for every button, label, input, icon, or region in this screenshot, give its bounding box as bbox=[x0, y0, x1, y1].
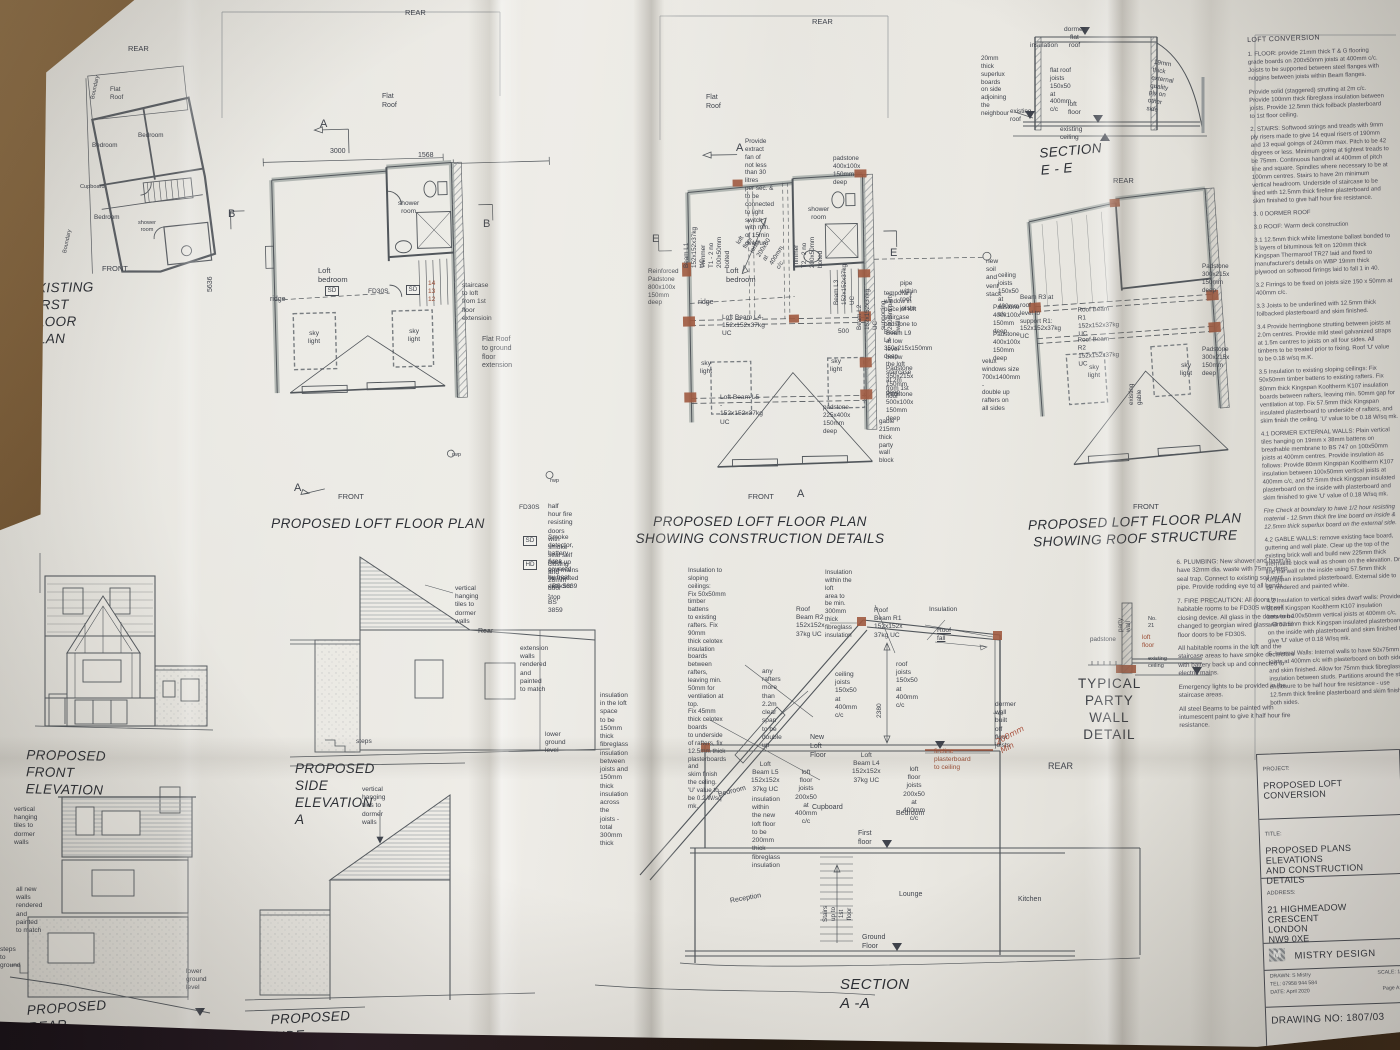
loft-rear-label: REAR bbox=[405, 8, 426, 17]
insulation-label: Insulation bbox=[929, 606, 957, 614]
note-item: 3.0 ROOF: Warm deck construction bbox=[1254, 219, 1392, 232]
skylight-label: sky light bbox=[700, 360, 712, 376]
insulation-new-floor-note: insulation within the new loft floor to … bbox=[752, 796, 780, 870]
neighbour-label: No. 21 bbox=[1148, 616, 1157, 630]
scale: SCALE: 1: bbox=[1377, 969, 1400, 976]
title-block-meta-row: DRAWN: S Mistry TEL: 07958 944 584 DATE:… bbox=[1265, 966, 1400, 1008]
page: Page A1 bbox=[1383, 985, 1400, 992]
project-name: PROPOSED LOFT CONVERSION bbox=[1263, 776, 1396, 801]
section-ee-title: SECTION E - E bbox=[1039, 140, 1105, 179]
title-block: PROJECT: PROPOSED LOFT CONVERSION TITLE:… bbox=[1256, 749, 1400, 1048]
staircase-note: staircase to loft from 1st floor extensi… bbox=[462, 282, 492, 323]
existing-roof-label: existing roof bbox=[1010, 108, 1031, 124]
tiles-note: vertical hanging tiles to dormer walls bbox=[362, 786, 385, 827]
superlux-boards-note: 20mm thick superlux boards on side adjoi… bbox=[981, 55, 1009, 118]
mistry-logo-icon: M bbox=[1269, 948, 1285, 962]
skylight-label: sky light bbox=[308, 330, 320, 346]
ridge-label: ridge bbox=[270, 296, 286, 305]
note-item: 1. FLOOR: provide 21mm thick T & G floor… bbox=[1248, 47, 1387, 84]
construction-flat-roof-label: Flat Roof bbox=[706, 94, 721, 112]
insulation-loft-note: Insulation within the loft area to be mi… bbox=[825, 569, 852, 640]
section-marker-b: B bbox=[483, 218, 490, 232]
fd30s-door-label: FD30S bbox=[368, 288, 389, 296]
section-ee-drawing bbox=[985, 15, 1235, 165]
shower-room-label: shower room bbox=[138, 220, 156, 234]
ceiling-joists-note: ceiling joists 150x50 at 400mm c/c bbox=[835, 671, 857, 720]
loft-flat-roof-label: Flat Roof bbox=[382, 93, 397, 111]
roof-front-label: FRONT bbox=[1133, 502, 1159, 511]
title-block-address-row: ADDRESS: 21 HIGHMEADOW CRESCENT LONDON N… bbox=[1261, 874, 1400, 944]
bedroom-label: Bedroom bbox=[92, 142, 118, 150]
bedroom-label: Bedroom bbox=[896, 810, 924, 819]
construction-plan-title: PROPOSED LOFT FLOOR PLAN SHOWING CONSTRU… bbox=[580, 514, 940, 548]
plumbing-note: 6. PLUMBING: New shower and basin to hav… bbox=[1176, 557, 1295, 593]
photo-of-architectural-drawing: REAR Flat Roof Boundary Boundary Bedroom… bbox=[0, 0, 1400, 1050]
note-item: 3. 0 DORMER ROOF bbox=[1253, 206, 1391, 219]
fire-note: 7. FIRE PRECAUTION: All doors to habitab… bbox=[1177, 596, 1296, 640]
loft-front-label: FRONT bbox=[338, 492, 364, 501]
insulation-sloping-note: Insulation to sloping ceilings: Fix 50x5… bbox=[688, 567, 726, 811]
note-item-fire-check: Fire Check at boundary to have 1/2 hour … bbox=[1263, 503, 1400, 532]
fire-note: Emergency lights to be provided in the s… bbox=[1179, 682, 1297, 701]
gable-party-wall-note: gable 215mm thick party wall block bbox=[879, 418, 900, 465]
first-floor-label: First floor bbox=[858, 830, 872, 848]
drawing-number: DRAWING NO: 1807/03 bbox=[1271, 1012, 1384, 1027]
title-block-project-row: PROJECT: PROPOSED LOFT CONVERSION bbox=[1257, 750, 1400, 820]
reinforced-padstone-note: Reinforced Padstone 800x100x 150mm deep bbox=[648, 268, 678, 307]
dimension-500: 500 bbox=[838, 328, 849, 336]
padstone-225-note: padstone 225x400x 150mm deep bbox=[823, 404, 850, 435]
insulation-loft-space-note: insulation in the loft space to be 150mm… bbox=[600, 692, 628, 848]
existing-front-label: FRONT bbox=[102, 264, 128, 273]
section-aa-title: SECTION A -A bbox=[840, 976, 909, 1014]
note-item: 2. STAIRS: Softwood strings and treads w… bbox=[1250, 121, 1391, 206]
address-label: ADDRESS: bbox=[1267, 890, 1296, 897]
beam-l5-label: Loft Beam L5 - 152x152x37kg UC bbox=[720, 394, 763, 427]
skylight-label: sky light bbox=[1180, 362, 1192, 378]
fireline-plasterboard-note: fireline plasterboard to ceiling bbox=[934, 748, 971, 773]
stair-riser-numbers: 14 13 12 bbox=[428, 280, 435, 305]
front-elevation-drawing bbox=[15, 548, 225, 763]
loft-plan-title: PROPOSED LOFT FLOOR PLAN bbox=[253, 516, 503, 533]
roof-joists-note: roof joists 150x50 at 400mm c/c bbox=[896, 661, 918, 710]
lower-ground-note: lower ground level bbox=[186, 968, 207, 993]
floor-joists-note: loft floor joists 200x50 at 400mm c/c bbox=[795, 769, 817, 827]
section-marker-a: A bbox=[320, 118, 327, 132]
title-block-number-row: DRAWING NO: 1807/03 bbox=[1266, 1003, 1400, 1032]
beam-l3-label: Beam L3 152x152x37kg UC bbox=[833, 264, 857, 305]
skylight-label: sky light bbox=[1088, 364, 1100, 380]
note-item: 3.4 Provide herringbone strutting betwee… bbox=[1257, 319, 1396, 364]
ridge-label: ridge bbox=[698, 299, 714, 308]
beam-l4-label: Loft Beam L4- 152x152x37kg UC bbox=[722, 314, 765, 339]
loft-beam-l5-label: Loft Beam L5 152x152x 37kg UC bbox=[751, 761, 780, 794]
roof-beam-r1-label: Roof Beam R1 152x152x37kg UC bbox=[1077, 305, 1119, 338]
project-label: PROJECT: bbox=[1262, 766, 1289, 773]
roof-rear-label: REAR bbox=[1113, 176, 1134, 185]
lounge-label: Lounge bbox=[899, 891, 922, 900]
beam-r3-note: Beam R3 at roof level to support R1: 152… bbox=[1020, 294, 1061, 341]
trimmer-t1-label: Trimmer T1 - 2 no 200x50mm bolted bbox=[700, 237, 731, 268]
stairs-label: Stairs up to 1st floor bbox=[822, 906, 853, 922]
section-marker-e: E bbox=[652, 233, 659, 247]
legend-fd30s-key: FD30S bbox=[519, 504, 540, 512]
rear-label: Rear bbox=[478, 628, 493, 637]
title-block-title-row: TITLE: PROPOSED PLANS ELEVATIONS AND CON… bbox=[1259, 815, 1400, 879]
lower-ground-note: lower ground level bbox=[545, 731, 566, 756]
loft-bedroom-label: Loft bedroom bbox=[318, 266, 348, 285]
drawn-by: DRAWN: S Mistry bbox=[1270, 972, 1311, 979]
existing-ceiling-label: existing ceiling bbox=[1148, 656, 1167, 670]
dimension-3000: 3000 bbox=[330, 148, 346, 157]
trimmer-t2-label: Trimmer T2 - 2 no 200x50mm bolted bbox=[793, 237, 824, 268]
tiles-note: vertical hanging tiles to dormer walls bbox=[14, 806, 37, 847]
section-marker-e: E bbox=[890, 247, 897, 261]
velux-windows-note: velux windows size 700x1400mm - double u… bbox=[982, 358, 1020, 413]
dimension-5636: 5636 bbox=[207, 276, 216, 292]
plumbing-fire-notes: 6. PLUMBING: New shower and basin to hav… bbox=[1176, 557, 1297, 736]
fire-note: All steel Beams to be painted with intum… bbox=[1179, 704, 1297, 731]
shower-room-label: shower room bbox=[398, 200, 419, 216]
shower-room-label: shower room bbox=[808, 206, 829, 222]
tiles-note: vertical hanging tiles to dormer walls bbox=[455, 585, 478, 626]
new-loft-floor-label: New Loft Floor bbox=[810, 734, 826, 760]
dimension-2380: 2380 bbox=[876, 703, 884, 718]
roof-beam-r2-label: Roof Beam R2 152x152x 37kg UC bbox=[796, 606, 825, 639]
insulation-label: insulation bbox=[1030, 42, 1058, 50]
existing-gable-label: existing gable bbox=[1128, 384, 1144, 405]
date: DATE: April 2020 bbox=[1270, 988, 1310, 995]
party-wall-title: TYPICAL PARTY WALL DETAIL bbox=[1078, 676, 1141, 744]
side-elevation-a2-drawing bbox=[245, 785, 555, 1045]
ground-floor-label: Ground Floor bbox=[862, 934, 885, 952]
existing-ceiling-label: existing ceiling bbox=[1060, 126, 1082, 142]
dimension-1568: 1568 bbox=[418, 152, 434, 161]
section-marker-a: A bbox=[736, 142, 743, 156]
loft-bedroom-label: Loft bedroom bbox=[726, 266, 756, 285]
walls-rendered-note: all new walls rendered and painted to ma… bbox=[16, 886, 42, 935]
cupboard-label: Cupboard bbox=[812, 804, 843, 813]
padstone-300-note: Padstone 300x215x 150mm deep bbox=[1202, 346, 1229, 377]
rwp-label: rwp bbox=[550, 478, 559, 485]
dormer-flat-roof-label: dormer flat roof bbox=[1064, 26, 1085, 51]
bedroom-label: Bedroom bbox=[94, 214, 120, 222]
section-marker-a: A bbox=[294, 482, 301, 496]
telephone: TEL: 07958 944 584 bbox=[1270, 980, 1317, 988]
rear-elevation-drawing bbox=[10, 785, 255, 1035]
padstone-note: padstone 400x100x 150mm deep bbox=[833, 155, 860, 186]
smoke-detector-symbol: SD bbox=[325, 286, 339, 296]
address: 21 HIGHMEADOW CRESCENT LONDON NW9 0XE bbox=[1267, 900, 1400, 945]
roof-beam-r1-label: Roof Beam R1 152x152x 37kg UC bbox=[874, 607, 903, 640]
padstone-label: padstone bbox=[1090, 636, 1116, 644]
loft-floor-label: loft floor bbox=[1068, 101, 1081, 117]
section-marker-a: A bbox=[797, 488, 804, 502]
steps-note: steps to ground bbox=[0, 946, 21, 971]
construction-rear-label: REAR bbox=[812, 17, 833, 26]
rwp-label: rwp bbox=[452, 452, 461, 459]
construction-plan-drawing bbox=[635, 120, 1025, 520]
existing-plan-title: EXISTING FIRST FLOOR PLAN bbox=[27, 279, 94, 348]
cupboard-label: Cupboard bbox=[80, 184, 105, 191]
drawing-sheet: REAR Flat Roof Boundary Boundary Bedroom… bbox=[0, 0, 1400, 1050]
existing-flat-roof-label: Flat Roof bbox=[110, 86, 123, 102]
rafters-doubling-note: any rafters more than 2.2m clear span to… bbox=[762, 668, 782, 750]
rear-label: REAR bbox=[1048, 761, 1073, 772]
kitchen-label: Kitchen bbox=[1018, 896, 1041, 905]
firm-name: MISTRY DESIGN bbox=[1294, 948, 1375, 962]
extension-walls-note: extension walls rendered and painted to … bbox=[520, 645, 548, 694]
loft-plan-drawing bbox=[205, 95, 585, 505]
section-marker-b: B bbox=[228, 208, 235, 222]
note-item: 4.1 DORMER EXTERNAL WALLS: Plain vertica… bbox=[1261, 426, 1400, 503]
party-wall-label: party wall bbox=[1117, 618, 1133, 632]
fire-note: All habitable rooms in the loft and the … bbox=[1178, 643, 1297, 679]
note-item: 3.5 Insulation to existing sloping ceili… bbox=[1259, 364, 1399, 425]
note-item: 3.1 12.5mm thick white limestone ballast… bbox=[1254, 232, 1393, 277]
flat-roof-extension-note: Flat Roof to ground floor extension bbox=[482, 336, 512, 371]
note-item: Provide solid (staggered) strutting at 2… bbox=[1249, 84, 1388, 121]
loft-floor-label: loft floor bbox=[1142, 634, 1154, 650]
title-label: TITLE: bbox=[1265, 831, 1282, 838]
note-item: 3.2 Firrings to be fixed on joists size … bbox=[1256, 277, 1394, 298]
bedroom-label: Bedroom bbox=[138, 132, 164, 140]
smoke-detector-symbol: SD bbox=[406, 285, 420, 295]
note-item: 3.3 Joists to be underlined with 12.5mm … bbox=[1256, 298, 1394, 319]
skylight-label: sky light bbox=[408, 328, 420, 344]
construction-front-label: FRONT bbox=[748, 492, 774, 501]
skylight-label: sky light bbox=[830, 358, 842, 374]
roof-fall-label: Roof fall bbox=[937, 627, 951, 643]
existing-rear-label: REAR bbox=[128, 44, 149, 53]
padstone-300-note: Padstone 300x215x 150mm deep bbox=[1202, 263, 1229, 294]
loft-beam-l4-label: Loft Beam L4 152x152x 37kg UC bbox=[852, 752, 881, 785]
steps-label: steps bbox=[356, 738, 372, 746]
